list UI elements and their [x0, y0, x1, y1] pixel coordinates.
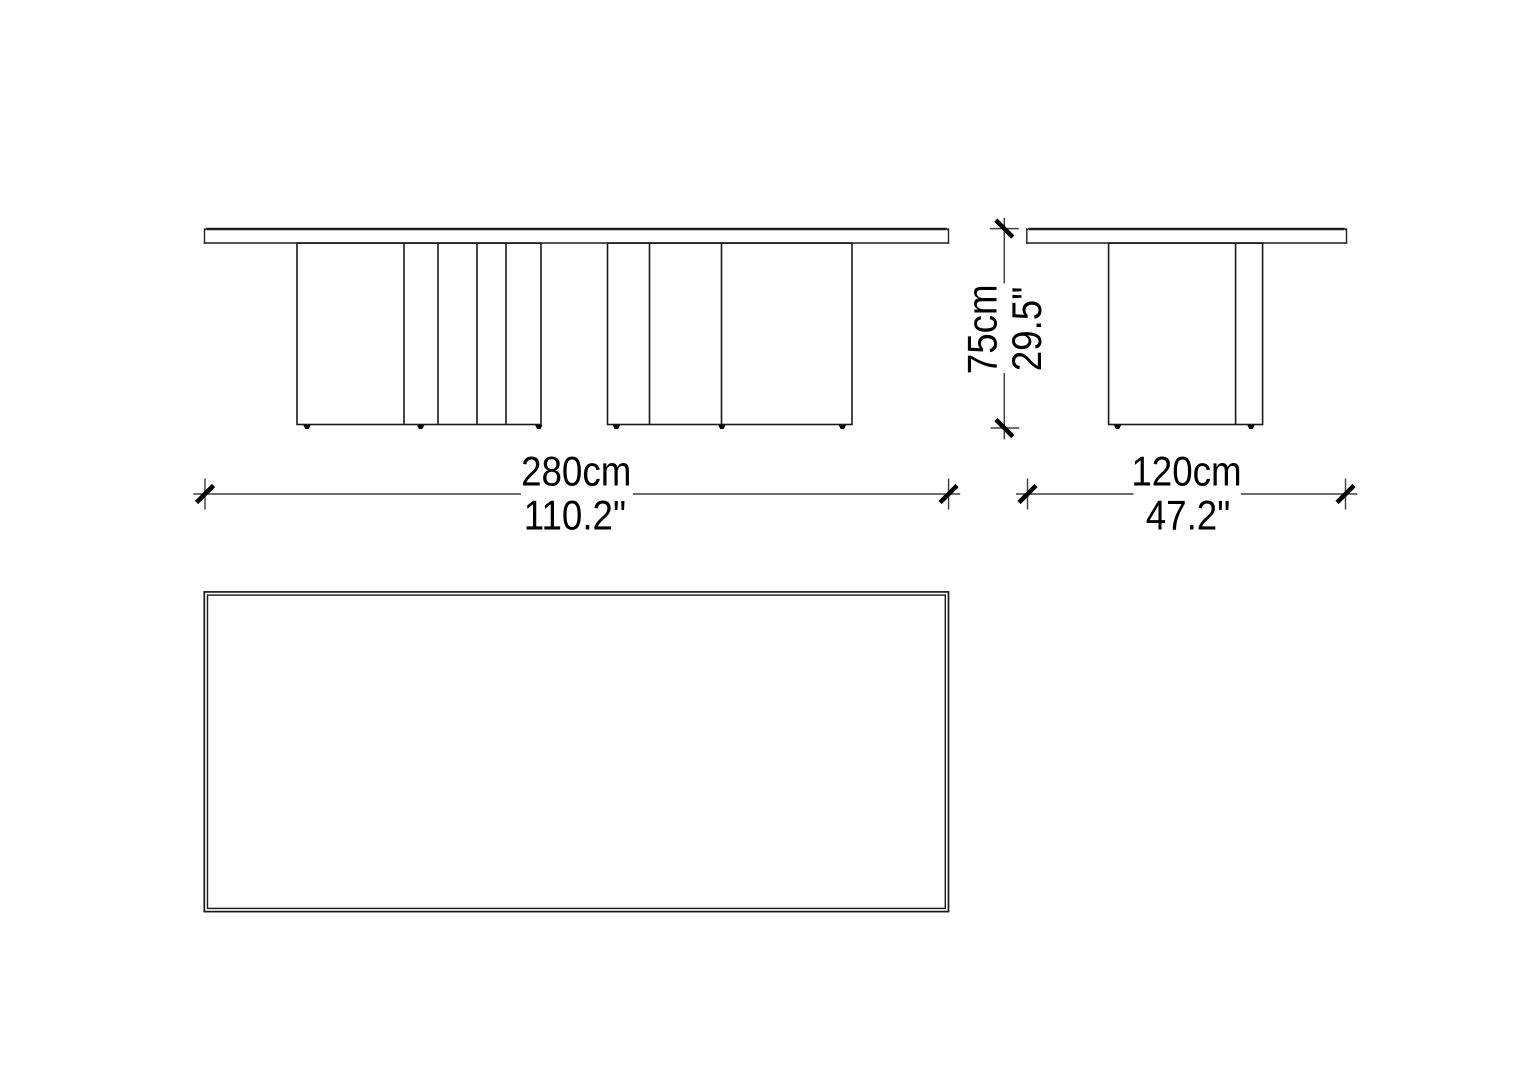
svg-text:29.5": 29.5" [1004, 287, 1051, 372]
svg-text:75cm: 75cm [959, 284, 1006, 374]
svg-text:120cm: 120cm [1131, 448, 1241, 495]
svg-text:280cm: 280cm [521, 448, 631, 495]
svg-text:47.2": 47.2" [1146, 492, 1231, 539]
svg-text:110.2": 110.2" [524, 492, 626, 539]
